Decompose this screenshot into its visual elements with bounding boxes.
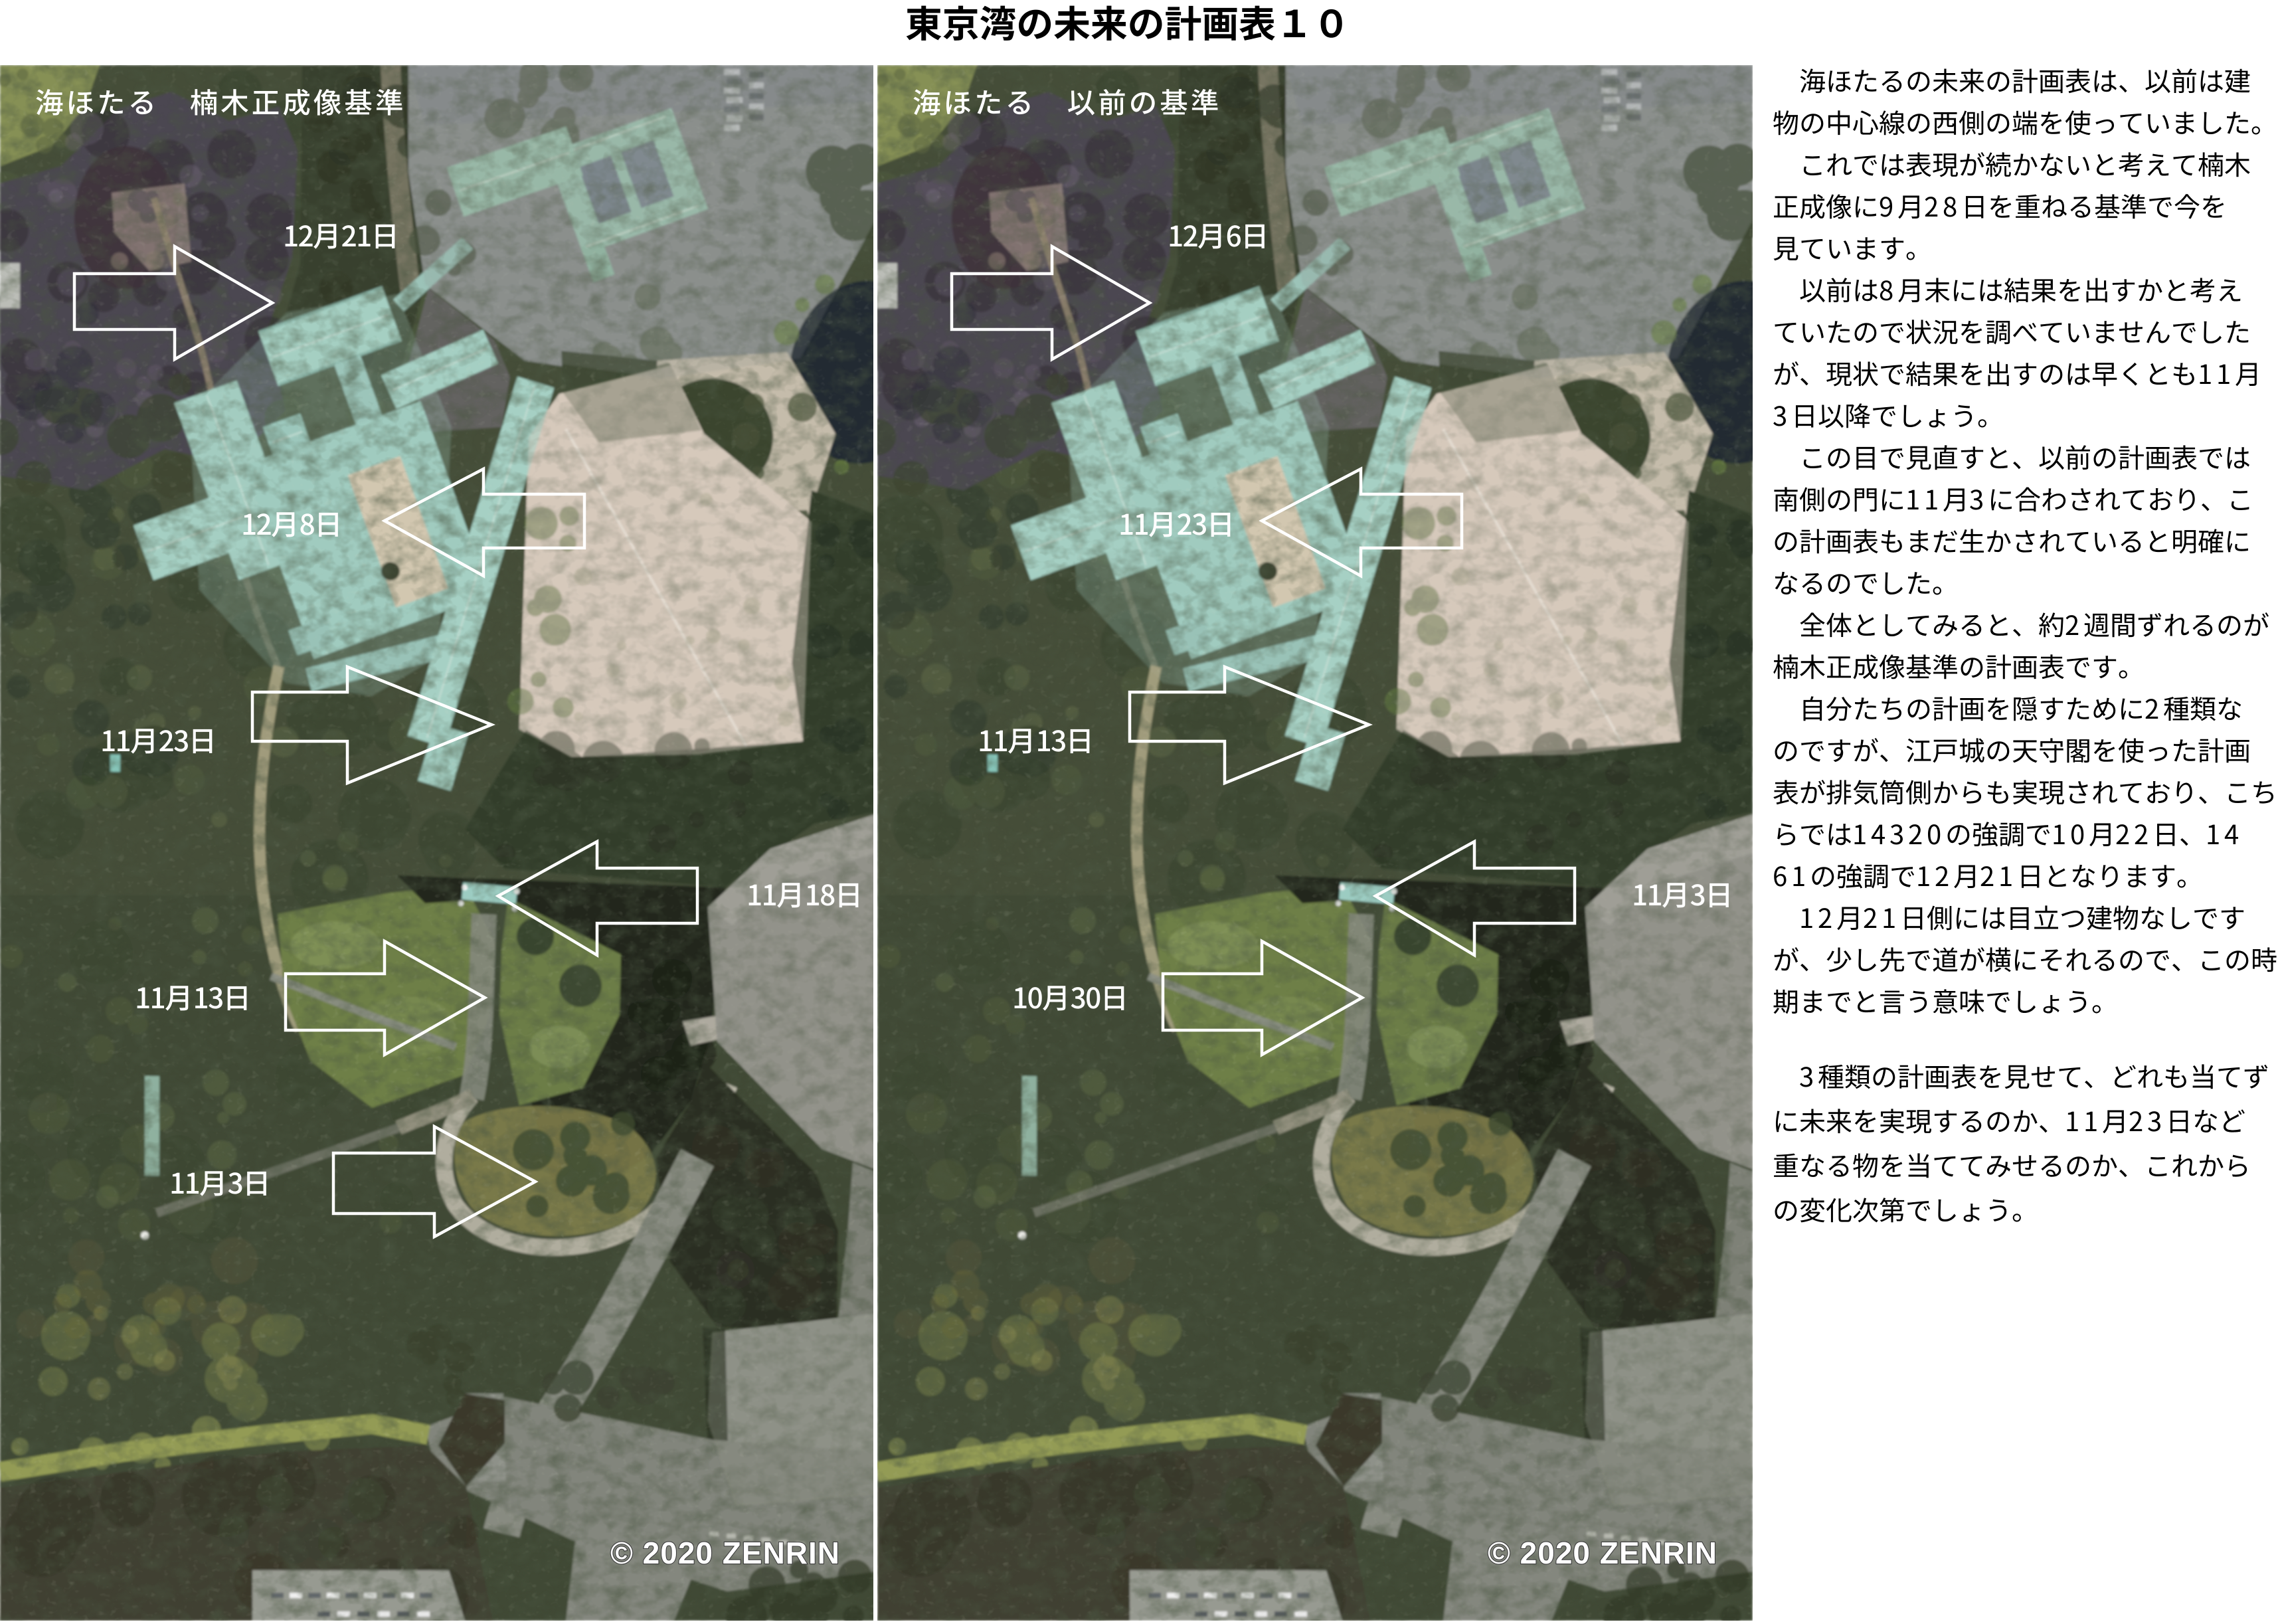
svg-text:© 2020 ZENRIN: © 2020 ZENRIN	[610, 1536, 840, 1570]
svg-text:© 2020 ZENRIN: © 2020 ZENRIN	[1488, 1536, 1717, 1570]
